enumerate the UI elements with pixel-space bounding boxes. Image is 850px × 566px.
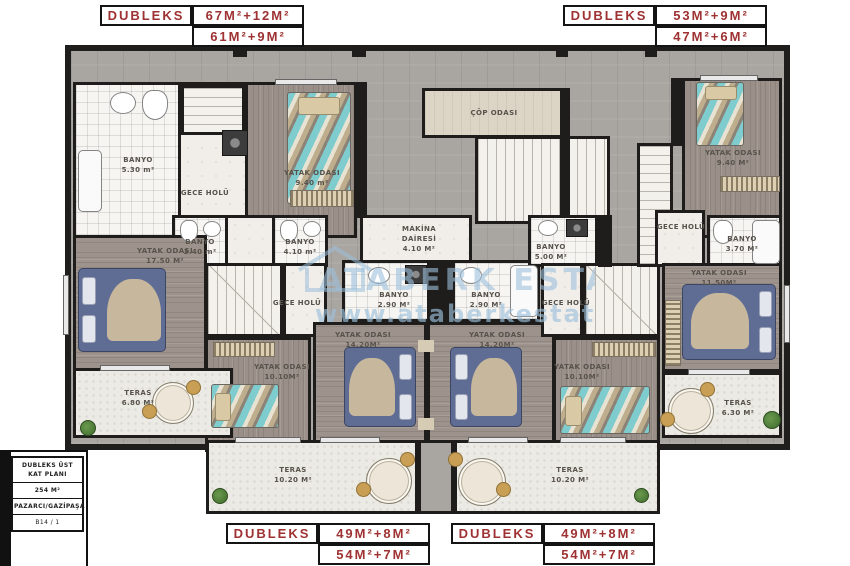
chair — [660, 412, 675, 427]
chair — [496, 482, 511, 497]
room-label-banyo-370: BANYO3.70 M² — [726, 234, 759, 254]
terrace-door — [235, 437, 301, 443]
staircase-unit-right — [583, 263, 660, 337]
bed-single — [560, 386, 650, 434]
chair — [186, 380, 201, 395]
badge-title: DUBLEKS — [100, 5, 192, 26]
wall-segment — [430, 260, 452, 322]
wall-segment — [355, 82, 367, 218]
room-label-teras-630: TERAS6.30 M² — [722, 398, 755, 418]
room-label-banyo-530: BANYO5.30 m² — [122, 155, 155, 175]
bathtub — [510, 265, 538, 317]
rug — [720, 176, 780, 192]
rug — [592, 342, 656, 357]
badge-top-left: DUBLEKS 67M²+12M² 61M²+9M² — [100, 5, 304, 47]
sink — [110, 92, 136, 114]
column — [352, 45, 366, 57]
terrace-door — [468, 437, 528, 443]
room-label-yatak-1150: YATAK ODASI11.50M² — [691, 268, 747, 288]
room-label-gece-holu-left: GECE HOLÜ — [273, 298, 321, 308]
window — [275, 79, 337, 85]
plan-title: DUBLEKS ÜST KAT PLANI — [13, 458, 82, 483]
window — [63, 275, 69, 335]
room-label-yatak-1420-left: YATAK ODASI14.20M² — [335, 330, 391, 350]
washing-machine — [405, 265, 427, 284]
room-label-banyo-290-right: BANYO2.90 M² — [470, 290, 503, 310]
room-label-teras-1020-right: TERAS10.20 M² — [551, 465, 589, 485]
room-label-gece-holu-top-right: GECE HOLÜ — [657, 222, 705, 232]
terrace-divider — [418, 440, 454, 514]
plant — [212, 488, 228, 504]
room-gece-holu-top-right — [655, 210, 705, 267]
room-label-teras-680: TERAS6.80 M² — [122, 388, 155, 408]
wall-segment — [598, 215, 612, 267]
window — [784, 285, 790, 343]
badge-title: DUBLEKS — [226, 523, 318, 544]
wall-segment — [560, 88, 570, 216]
rug — [213, 342, 275, 357]
title-block-rule — [86, 450, 88, 566]
bed-double — [450, 347, 522, 427]
plant — [634, 488, 649, 503]
title-block-table: DUBLEKS ÜST KAT PLANI 254 M² PAZARCI/GAZ… — [11, 456, 84, 532]
window — [700, 75, 758, 81]
badge-area-2: 47M²+6M² — [655, 26, 767, 47]
plan-location: PAZARCI/GAZİPAŞA — [13, 499, 82, 515]
badge-title: DUBLEKS — [563, 5, 655, 26]
badge-area-1: 49M²+8M² — [318, 523, 430, 544]
title-block-rule — [0, 450, 88, 452]
floor-plan-page: { "meta": { "accent_color": "#9e3132", "… — [0, 0, 850, 566]
bed-double — [682, 284, 776, 360]
room-label-yatak-1010-left: YATAK ODASI10.10M² — [254, 362, 310, 382]
plan-unit-no: B14 / 1 — [13, 515, 82, 530]
terrace-door — [560, 437, 626, 443]
wall-segment — [671, 78, 683, 146]
chair — [356, 482, 371, 497]
toilet — [142, 90, 168, 120]
room-label-banyo-410: BANYO4.10 m² — [284, 237, 317, 257]
room-label-cop-odasi: ÇÖP ODASI — [470, 108, 517, 118]
room-label-yatak-1420-right: YATAK ODASI14.20M² — [469, 330, 525, 350]
terrace-door — [100, 365, 170, 371]
room-label-gece-holu-right: GECE HOLÜ — [542, 298, 590, 308]
bed-single — [211, 384, 279, 428]
title-block-bar — [0, 450, 11, 566]
staircase-core — [475, 136, 610, 224]
badge-top-right: DUBLEKS 53M²+9M² 47M²+6M² — [563, 5, 767, 47]
room-label-teras-1020-left: TERAS10.20 M² — [274, 465, 312, 485]
badge-area-2: 61M²+9M² — [192, 26, 304, 47]
rug — [290, 190, 354, 207]
rug — [665, 300, 681, 366]
bed-double — [78, 268, 166, 352]
room-label-makina: MAKİNA DAİRESİ4.10 M² — [390, 224, 448, 254]
badge-area-1: 53M²+9M² — [655, 5, 767, 26]
room-label-banyo-290-left: BANYO2.90 M² — [378, 290, 411, 310]
room-label-gece-holu-top-left: GECE HOLÜ — [181, 188, 229, 198]
badge-bottom-left: DUBLEKS 49M²+8M² 54M²+7M² — [226, 523, 430, 565]
bed-double — [344, 347, 416, 427]
sink — [460, 267, 482, 284]
chair — [400, 452, 415, 467]
badge-area-1: 49M²+8M² — [543, 523, 655, 544]
chair — [448, 452, 463, 467]
staircase-unit-left — [205, 263, 283, 337]
nightstand — [418, 340, 434, 352]
badge-title: DUBLEKS — [451, 523, 543, 544]
washing-machine — [222, 130, 248, 156]
nightstand — [418, 418, 434, 430]
badge-bottom-right: DUBLEKS 49M²+8M² 54M²+7M² — [451, 523, 655, 565]
room-label-banyo-500: BANYO5.00 M² — [535, 242, 568, 262]
terrace-door — [320, 437, 380, 443]
badge-area-2: 54M²+7M² — [543, 544, 655, 565]
chair — [700, 382, 715, 397]
bathtub — [78, 150, 102, 212]
staircase-top-left — [181, 85, 245, 135]
sink — [368, 267, 390, 284]
badge-area-1: 67M²+12M² — [192, 5, 304, 26]
hall-small-left — [225, 215, 275, 267]
sink — [538, 220, 558, 236]
sink — [203, 221, 221, 237]
plan-total-area: 254 M² — [13, 483, 82, 499]
room-label-yatak-1750: YATAK ODASI17.50 M² — [137, 246, 193, 266]
room-label-yatak-940-right: YATAK ODASI9.40 M² — [705, 148, 761, 168]
washing-machine — [566, 219, 588, 237]
room-label-yatak-940-left: YATAK ODASI9.40 m² — [284, 168, 340, 188]
terrace-door — [688, 369, 750, 375]
plant — [763, 411, 781, 429]
badge-area-2: 54M²+7M² — [318, 544, 430, 565]
bed-single — [696, 82, 744, 146]
room-label-yatak-1010-right: YATAK ODASI10.10M² — [554, 362, 610, 382]
plant — [80, 420, 96, 436]
sink — [303, 221, 321, 237]
